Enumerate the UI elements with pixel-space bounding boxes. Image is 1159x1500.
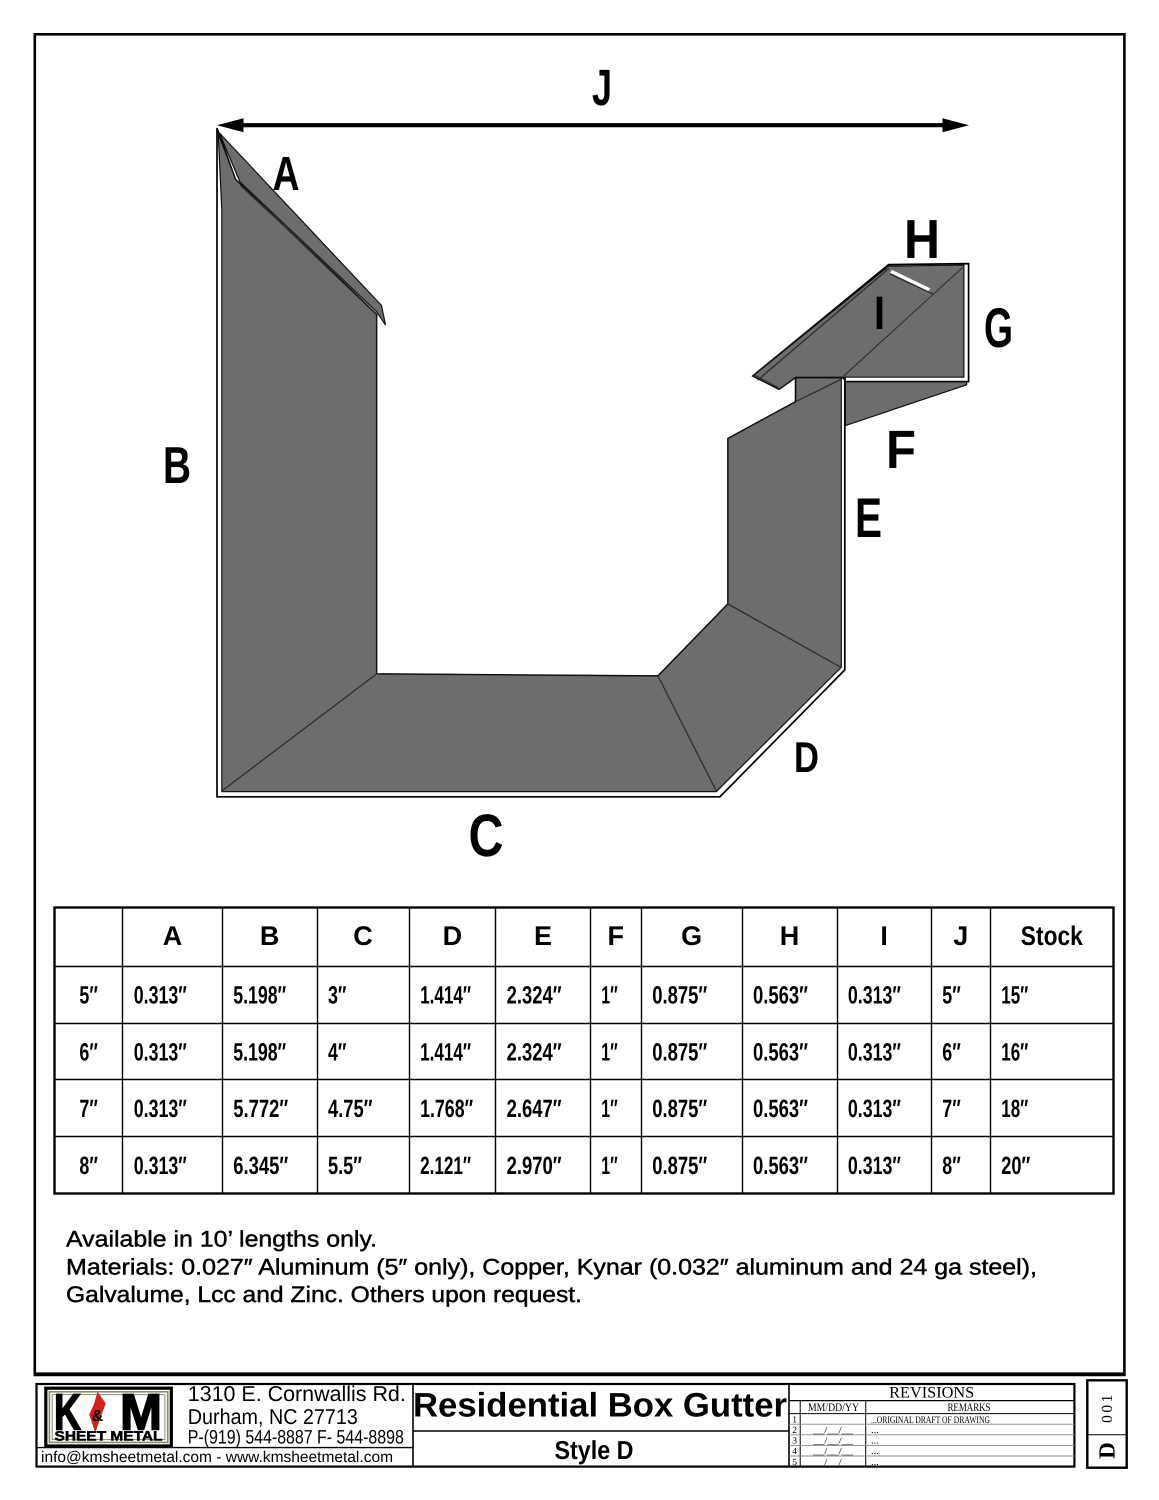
svg-text:1310 E. Cornwallis Rd.: 1310 E. Cornwallis Rd.: [188, 1382, 406, 1406]
svg-text:2.970″: 2.970″: [507, 1152, 562, 1180]
svg-text:0.875″: 0.875″: [652, 1152, 707, 1180]
svg-text:Durham, NC 27713: Durham, NC 27713: [188, 1405, 358, 1429]
svg-text:3: 3: [792, 1437, 797, 1447]
svg-text:0.313″: 0.313″: [848, 1038, 901, 1066]
svg-text:18″: 18″: [1001, 1095, 1028, 1123]
svg-text:...: ...: [871, 1457, 879, 1468]
svg-text:1″: 1″: [601, 1095, 618, 1123]
svg-text:1″: 1″: [601, 982, 618, 1010]
svg-text:0.313″: 0.313″: [134, 1152, 187, 1180]
svg-text:0.563″: 0.563″: [753, 982, 808, 1010]
svg-text:0.875″: 0.875″: [652, 982, 707, 1010]
svg-text:6″: 6″: [942, 1038, 961, 1066]
svg-text:5″: 5″: [942, 982, 961, 1010]
svg-text:5.198″: 5.198″: [233, 982, 286, 1010]
svg-text:5.198″: 5.198″: [233, 1038, 286, 1066]
svg-text:5: 5: [792, 1458, 797, 1468]
svg-text:1″: 1″: [601, 1038, 618, 1066]
svg-text:16″: 16″: [1001, 1038, 1028, 1066]
svg-text:I: I: [880, 921, 888, 951]
svg-text:H: H: [780, 921, 800, 951]
svg-text:0.875″: 0.875″: [652, 1038, 707, 1066]
svg-text:1.768″: 1.768″: [420, 1095, 473, 1123]
svg-text:8″: 8″: [942, 1152, 961, 1180]
svg-text:1.414″: 1.414″: [420, 1038, 471, 1066]
svg-text:D: D: [1095, 1442, 1120, 1459]
svg-text:A: A: [273, 148, 300, 201]
svg-text:...: ...: [871, 1436, 879, 1447]
svg-text:7″: 7″: [79, 1095, 98, 1123]
svg-text:E: E: [855, 486, 882, 549]
svg-text:20″: 20″: [1001, 1152, 1030, 1180]
svg-text:C: C: [469, 802, 504, 869]
svg-text:info@kmsheetmetal.com - www.km: info@kmsheetmetal.com - www.kmsheetmetal…: [41, 1449, 393, 1466]
svg-text:1: 1: [792, 1416, 797, 1426]
svg-text:1.414″: 1.414″: [420, 982, 471, 1010]
svg-text:4: 4: [792, 1447, 797, 1457]
svg-text:3″: 3″: [328, 982, 347, 1010]
svg-text:6″: 6″: [79, 1038, 98, 1066]
svg-text:0.313″: 0.313″: [848, 1095, 901, 1123]
svg-text:0.313″: 0.313″: [134, 1095, 187, 1123]
svg-text:I: I: [874, 286, 885, 339]
svg-text:1″: 1″: [601, 1152, 618, 1180]
svg-text:0.313″: 0.313″: [848, 1152, 901, 1180]
svg-text:8″: 8″: [79, 1152, 98, 1180]
svg-text:B: B: [163, 437, 191, 495]
svg-text:E: E: [534, 921, 552, 951]
svg-text:...ORIGINAL DRAFT OF DRAWING: ...ORIGINAL DRAFT OF DRAWING: [871, 1415, 990, 1426]
svg-text:6.345″: 6.345″: [233, 1152, 288, 1180]
svg-text:A: A: [163, 921, 183, 951]
svg-text:C: C: [353, 921, 373, 951]
svg-text:SHEET METAL: SHEET METAL: [55, 1429, 163, 1444]
svg-text:5.772″: 5.772″: [233, 1095, 288, 1123]
svg-text:&: &: [92, 1408, 104, 1425]
svg-text:15″: 15″: [1001, 982, 1028, 1010]
svg-text:__/__/__: __/__/__: [812, 1426, 853, 1436]
svg-text:7″: 7″: [942, 1095, 961, 1123]
svg-text:G: G: [681, 921, 702, 951]
svg-text:2: 2: [792, 1426, 797, 1436]
svg-text:D: D: [794, 734, 819, 782]
svg-text:MM/DD/YY: MM/DD/YY: [808, 1402, 860, 1414]
svg-text:5.5″: 5.5″: [328, 1152, 362, 1180]
svg-text:F: F: [608, 921, 625, 951]
svg-text:B: B: [260, 921, 280, 951]
svg-text:0.563″: 0.563″: [753, 1095, 808, 1123]
svg-text:...: ...: [871, 1446, 879, 1457]
svg-text:J: J: [592, 59, 612, 116]
svg-text:Materials: 0.027″ Aluminum (5″: Materials: 0.027″ Aluminum (5″ only), Co…: [66, 1255, 1037, 1280]
svg-text:2.121″: 2.121″: [420, 1152, 471, 1180]
svg-text:Residential Box Gutter: Residential Box Gutter: [413, 1387, 787, 1425]
svg-text:Stock: Stock: [1021, 921, 1084, 951]
svg-text:...: ...: [871, 1425, 879, 1436]
svg-text:0.875″: 0.875″: [652, 1095, 707, 1123]
svg-text:0.563″: 0.563″: [753, 1038, 808, 1066]
svg-text:Available in 10’ lengths only.: Available in 10’ lengths only.: [66, 1226, 377, 1251]
svg-text:0.563″: 0.563″: [753, 1152, 808, 1180]
svg-text:4.75″: 4.75″: [328, 1095, 373, 1123]
svg-text:Galvalume, Lcc and Zinc. Other: Galvalume, Lcc and Zinc. Others upon req…: [66, 1282, 582, 1307]
svg-text:P-(919) 544-8887 F- 544-8898: P-(919) 544-8887 F- 544-8898: [188, 1427, 404, 1449]
svg-text:001: 001: [1099, 1392, 1116, 1423]
svg-text:REMARKS: REMARKS: [948, 1402, 991, 1414]
svg-text:2.324″: 2.324″: [507, 982, 562, 1010]
svg-text:__/__/__: __/__/__: [812, 1458, 853, 1468]
svg-text:4″: 4″: [328, 1038, 347, 1066]
svg-text:5″: 5″: [79, 982, 98, 1010]
svg-text:__/__/__: __/__/__: [812, 1447, 853, 1457]
svg-text:G: G: [984, 296, 1013, 359]
svg-text:0.313″: 0.313″: [134, 1038, 187, 1066]
svg-text:Style D: Style D: [555, 1435, 634, 1465]
svg-text:F: F: [886, 420, 916, 480]
svg-text:REVISIONS: REVISIONS: [889, 1385, 974, 1402]
svg-text:2.324″: 2.324″: [507, 1038, 562, 1066]
svg-text:J: J: [953, 921, 968, 951]
svg-text:2.647″: 2.647″: [507, 1095, 562, 1123]
svg-text:0.313″: 0.313″: [848, 982, 901, 1010]
svg-text:H: H: [904, 208, 940, 270]
svg-text:__/__/__: __/__/__: [812, 1437, 853, 1447]
svg-text:D: D: [443, 921, 463, 951]
svg-text:0.313″: 0.313″: [134, 982, 187, 1010]
